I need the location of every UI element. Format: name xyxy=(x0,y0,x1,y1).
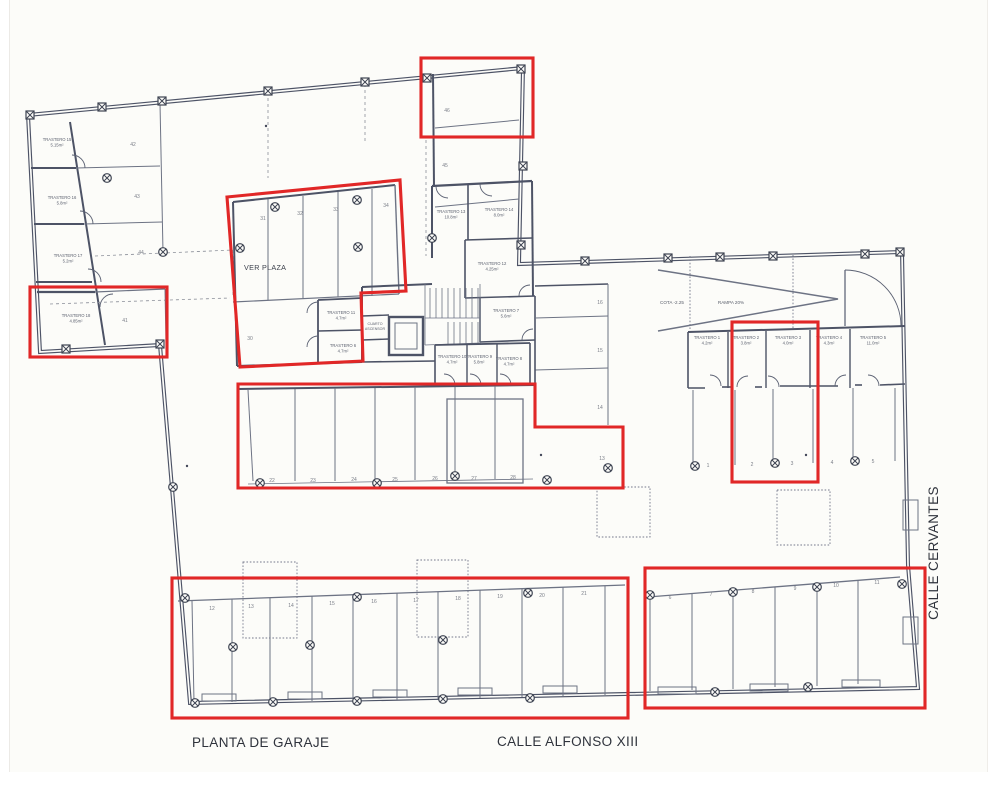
space-number: 10 xyxy=(833,583,839,589)
room-label-t4: TRASTERO 4 xyxy=(816,335,843,340)
space-number: 11 xyxy=(874,580,879,586)
room-area-t17: 5.2m² xyxy=(63,259,74,264)
space-number: 9 xyxy=(794,586,797,592)
space-number: 7 xyxy=(710,592,713,598)
space-number: 13 xyxy=(248,604,254,610)
space-number: 13 xyxy=(599,456,605,462)
plan-titles: PLANTA DE GARAJE CALLE ALFONSO XIII CALL… xyxy=(192,486,941,750)
room-label-t16: TRASTERO 16 xyxy=(48,195,77,200)
space-number: 12 xyxy=(209,606,215,612)
room-label-t5: TRASTERO 5 xyxy=(860,335,887,340)
space-number: 15 xyxy=(329,601,335,607)
space-number: 26 xyxy=(432,476,438,482)
ver-plaza-group xyxy=(233,185,399,366)
space-number: 23 xyxy=(310,478,316,484)
space-number: 19 xyxy=(497,594,503,600)
space-number: 25 xyxy=(392,477,398,483)
space-number: 31 xyxy=(260,216,266,222)
guide-lines xyxy=(50,84,830,638)
space-number: 16 xyxy=(597,300,603,306)
mid-parking-row xyxy=(238,385,535,484)
room-area-t1: 4.2m² xyxy=(702,341,713,346)
scan-specks xyxy=(186,125,807,467)
room-label-t1: TRASTERO 1 xyxy=(694,335,721,340)
room-label-t2: TRASTERO 2 xyxy=(733,335,760,340)
space-number: 30 xyxy=(247,336,253,342)
space-number: 14 xyxy=(597,405,603,411)
scanned-plan-sheet: TRASTERO 15 5.15m² TRASTERO 16 5.8m² TRA… xyxy=(0,0,1000,800)
street-label-right: CALLE CERVANTES xyxy=(926,486,941,620)
room-area-t2: 3.8m² xyxy=(741,341,752,346)
room-area-t16: 5.8m² xyxy=(57,201,68,206)
space-number: 2 xyxy=(751,462,754,468)
room-label-t15: TRASTERO 15 xyxy=(43,137,72,142)
space-number: 8 xyxy=(752,589,755,595)
scan-edge-bottom xyxy=(0,772,1000,800)
space-number: 14 xyxy=(288,603,294,609)
space-number: 18 xyxy=(455,596,461,602)
ver-plaza-label: VER PLAZA xyxy=(244,263,286,272)
room-area-t9: 5.8m² xyxy=(474,360,485,365)
north-wing xyxy=(426,74,519,256)
room-area-t6: 4.7m² xyxy=(338,349,349,354)
room-label-t9: TRASTERO 9 xyxy=(466,354,493,359)
rampa-label: RAMPA 20% xyxy=(718,300,744,305)
room-area-t3: 4.0m² xyxy=(783,341,794,346)
bottom-left-parking-row xyxy=(178,585,625,702)
space-number: 45 xyxy=(442,163,448,169)
cota-label: COTA -2.25 xyxy=(660,300,684,305)
ascensor-label-line1: CUARTO xyxy=(367,322,382,326)
space-number: 42 xyxy=(130,142,136,148)
highlight-zone-mid-row xyxy=(238,384,623,488)
space-number: 21 xyxy=(581,591,587,597)
room-label-t3: TRASTERO 3 xyxy=(775,335,802,340)
room-area-t18: 4.85m² xyxy=(69,319,83,324)
space-number: 15 xyxy=(597,348,603,354)
room-area-t15: 5.15m² xyxy=(50,143,64,148)
scan-edge-left xyxy=(0,0,10,800)
room-label-t7: TRASTERO 7 xyxy=(493,308,520,313)
highlight-zone-east-trasteros xyxy=(732,322,818,482)
space-number: 1 xyxy=(707,463,710,469)
space-number: 27 xyxy=(471,476,477,482)
room-label-t11: TRASTERO 11 xyxy=(327,310,356,315)
scan-edge-right xyxy=(987,0,1000,800)
page-title: PLANTA DE GARAJE xyxy=(192,735,329,750)
space-number: 34 xyxy=(383,203,389,209)
space-number: 5 xyxy=(872,459,875,465)
room-label-t12: TRASTERO 12 xyxy=(478,261,507,266)
room-label-t8: TRASTERO 8 xyxy=(496,356,523,361)
space-number: 33 xyxy=(333,207,339,213)
space-number: 46 xyxy=(444,108,450,114)
room-label-t14: TRASTERO 14 xyxy=(485,207,514,212)
space-number: 28 xyxy=(510,475,516,481)
room-area-t12: 4.25m² xyxy=(485,267,499,272)
room-area-t13: 10.8m² xyxy=(444,215,458,220)
room-area-t11: 4.7m² xyxy=(336,316,347,321)
space-number: 24 xyxy=(351,477,357,483)
room-area-t14: 8.0m² xyxy=(494,213,505,218)
space-number: 3 xyxy=(791,461,794,467)
space-number: 17 xyxy=(413,598,419,604)
room-area-t10: 4.7m² xyxy=(447,360,458,365)
room-area-t5: 11.0m² xyxy=(867,341,880,346)
space-number: 20 xyxy=(539,593,545,599)
space-number: 22 xyxy=(269,478,275,484)
room-label-t18: TRASTERO 18 xyxy=(62,313,91,318)
space-number: 32 xyxy=(297,211,303,217)
room-label-t13: TRASTERO 13 xyxy=(437,209,466,214)
room-area-t7: 5.6m² xyxy=(501,314,512,319)
space-number: 44 xyxy=(138,250,144,256)
room-area-t4: 4.3m² xyxy=(824,341,835,346)
room-label-t17: TRASTERO 17 xyxy=(54,253,83,258)
floor-plan-svg: TRASTERO 15 5.15m² TRASTERO 16 5.8m² TRA… xyxy=(0,0,1000,800)
space-number: 16 xyxy=(371,599,377,605)
space-number: 43 xyxy=(134,194,140,200)
bottom-right-parking-row xyxy=(648,577,900,694)
street-label-bottom: CALLE ALFONSO XIII xyxy=(497,734,639,749)
room-label-t6: TRASTERO 6 xyxy=(330,343,357,348)
ascensor-label-line2: ASCENSOR xyxy=(365,327,386,331)
room-label-t10: TRASTERO 10 xyxy=(438,354,467,359)
space-number: 6 xyxy=(669,595,672,601)
elevator xyxy=(389,317,423,355)
room-area-t8: 4.7m² xyxy=(504,362,515,367)
space-number: 41 xyxy=(122,318,128,324)
stair-treads xyxy=(425,284,480,345)
space-number: 4 xyxy=(831,460,834,466)
